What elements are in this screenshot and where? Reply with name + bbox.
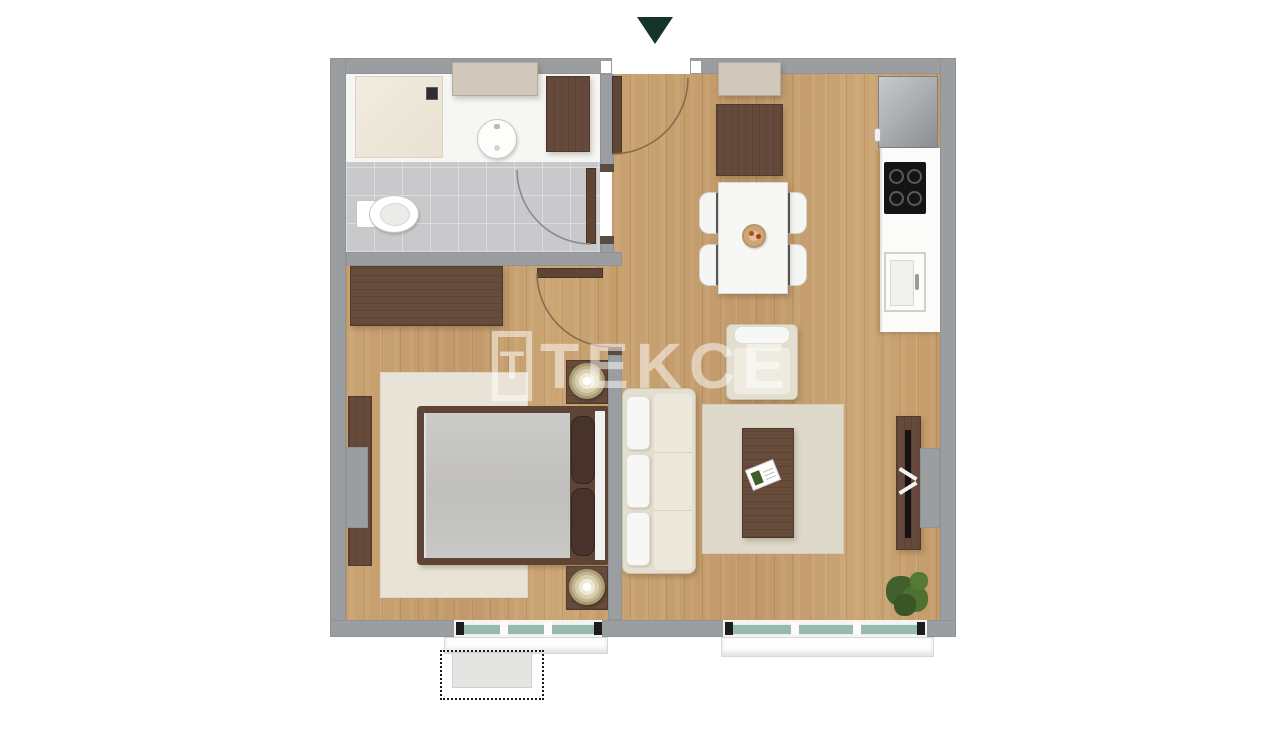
bed-headboard xyxy=(595,411,605,560)
wall-right xyxy=(940,58,956,637)
magazine-cover xyxy=(751,470,764,485)
wall-bottom-middle xyxy=(598,620,725,637)
wall-bottom-left xyxy=(330,620,458,637)
fruit xyxy=(749,231,754,236)
bathroom-door-leaf xyxy=(586,168,596,244)
dining-chair xyxy=(787,244,807,286)
entrance-jamb-left xyxy=(600,60,612,74)
cooktop-burner xyxy=(907,191,922,206)
bed-pillow xyxy=(571,488,595,556)
living-window-end xyxy=(725,622,733,635)
sofa-back-cushion xyxy=(626,454,650,508)
sofa-back-cushion xyxy=(626,396,650,450)
plant-leaf xyxy=(894,594,916,616)
wall-left xyxy=(330,58,346,637)
dining-chair xyxy=(699,244,719,286)
bathroom-wall-cabinet xyxy=(452,62,538,96)
living-window-glass xyxy=(733,624,917,635)
bedroom-window-mullion xyxy=(544,622,552,635)
entrance-door-leaf xyxy=(612,76,622,154)
nightstand-lamp xyxy=(569,569,605,605)
shower-drain xyxy=(426,87,438,100)
balcony-dashed-outline xyxy=(440,650,544,700)
bathroom-door-jamb-bottom xyxy=(600,236,614,244)
cooktop xyxy=(884,162,926,214)
refrigerator-handle xyxy=(874,128,881,142)
refrigerator xyxy=(878,76,938,148)
bedroom-window-mullion xyxy=(500,622,508,635)
sofa-seat-seam xyxy=(654,452,692,453)
entrance-jamb-right xyxy=(690,60,702,74)
bathroom-side-cabinet xyxy=(546,76,590,152)
bed-duvet xyxy=(424,413,570,558)
hall-wall-shelf xyxy=(718,62,781,96)
kitchen-sink-basin xyxy=(890,260,914,306)
bedroom-window-end xyxy=(456,622,464,635)
wall-pier-right xyxy=(920,448,940,528)
bed-pillow xyxy=(571,416,595,484)
watermark-logo-letter: T xyxy=(500,346,524,386)
washbasin-faucet xyxy=(494,124,500,129)
kitchen-faucet xyxy=(915,274,919,290)
bedroom-window-end xyxy=(594,622,602,635)
cooktop-burner xyxy=(907,169,922,184)
sofa-back-cushion xyxy=(626,512,650,566)
bedroom-wardrobe xyxy=(350,266,503,326)
bedroom-door-leaf xyxy=(537,268,603,278)
magazine-lines xyxy=(762,466,776,480)
plant-leaf xyxy=(910,572,928,590)
washbasin-drain xyxy=(494,145,500,151)
watermark-brand: TEKCE xyxy=(540,334,792,398)
floor-plan: T TEKCE xyxy=(0,0,1280,731)
cooktop-burner xyxy=(889,169,904,184)
wall-bathroom-bottom xyxy=(346,252,622,266)
hall-shoe-cabinet xyxy=(716,104,783,176)
watermark-logo: T xyxy=(492,331,532,401)
bathroom-door-jamb-top xyxy=(600,164,614,172)
dining-chair xyxy=(699,192,719,234)
bedroom-window-glass xyxy=(464,624,594,635)
living-window-sill xyxy=(721,637,934,657)
fruit-bowl xyxy=(742,224,766,248)
sofa-seat xyxy=(654,394,692,570)
entrance-arrow-icon xyxy=(637,17,673,44)
living-window-mullion xyxy=(791,622,799,635)
cooktop-burner xyxy=(889,191,904,206)
fruit xyxy=(756,234,761,239)
toilet-bowl-inner xyxy=(380,203,410,226)
sofa-seat-seam xyxy=(654,510,692,511)
dining-chair xyxy=(787,192,807,234)
living-window-mullion xyxy=(853,622,861,635)
living-window-end xyxy=(917,622,925,635)
wall-pier-left xyxy=(346,447,368,528)
